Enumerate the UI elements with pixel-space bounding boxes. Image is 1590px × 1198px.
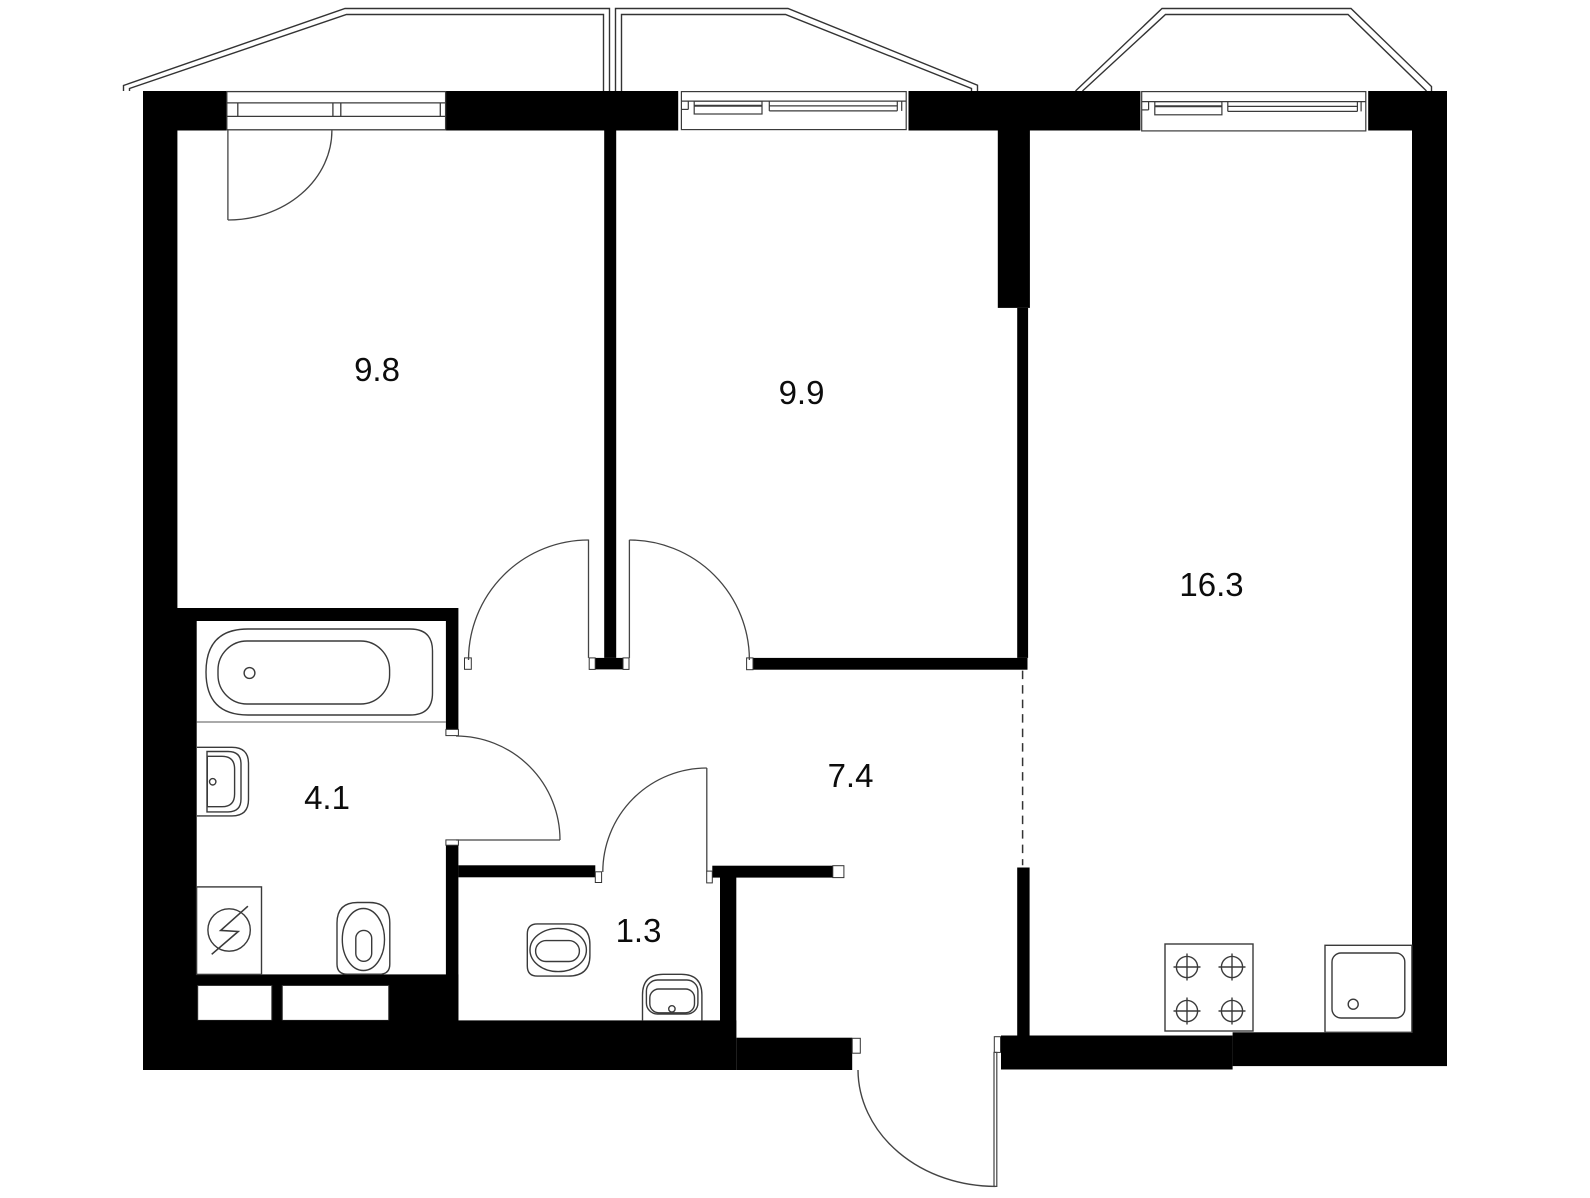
svg-text:9.9: 9.9	[779, 374, 825, 411]
svg-text:4.1: 4.1	[304, 779, 350, 816]
svg-text:16.3: 16.3	[1179, 566, 1243, 603]
svg-text:7.4: 7.4	[828, 757, 874, 794]
svg-text:1.3: 1.3	[616, 912, 662, 949]
svg-text:9.8: 9.8	[354, 351, 400, 388]
